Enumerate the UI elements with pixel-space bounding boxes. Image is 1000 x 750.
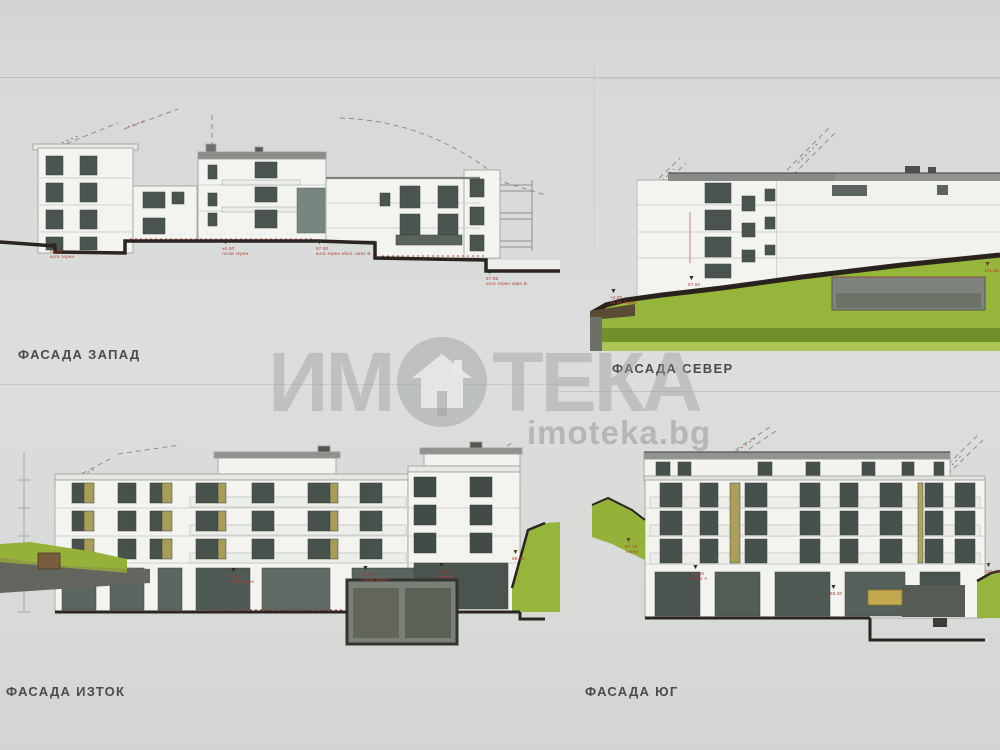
right-terrain bbox=[977, 571, 1000, 618]
watermark-brand-left: ИМ bbox=[268, 336, 392, 428]
plan-sheet-photo: ФАСАДА ЗАПАД ФАСАДА СЕВЕР ФАСАДА ИЗТОК Ф… bbox=[0, 0, 1000, 750]
west-facade-label: ФАСАДА ЗАПАД bbox=[18, 347, 140, 362]
east-facade-label: ФАСАДА ИЗТОК bbox=[6, 684, 125, 699]
windows bbox=[660, 483, 975, 563]
house-in-circle-icon bbox=[394, 334, 490, 430]
west-facade-drawing bbox=[0, 85, 560, 325]
ground-line bbox=[55, 612, 545, 619]
basement-pit bbox=[347, 580, 457, 644]
watermark-domain: imoteka.bg bbox=[527, 414, 711, 452]
south-facade-label: ФАСАДА ЮГ bbox=[585, 684, 679, 699]
east-facade-drawing bbox=[0, 438, 560, 670]
south-facade-drawing bbox=[585, 425, 1000, 660]
right-balcony-railings bbox=[500, 180, 532, 251]
retaining-structure bbox=[832, 277, 985, 310]
left-terrain bbox=[592, 498, 645, 560]
envelope-red-ticks bbox=[62, 120, 146, 143]
